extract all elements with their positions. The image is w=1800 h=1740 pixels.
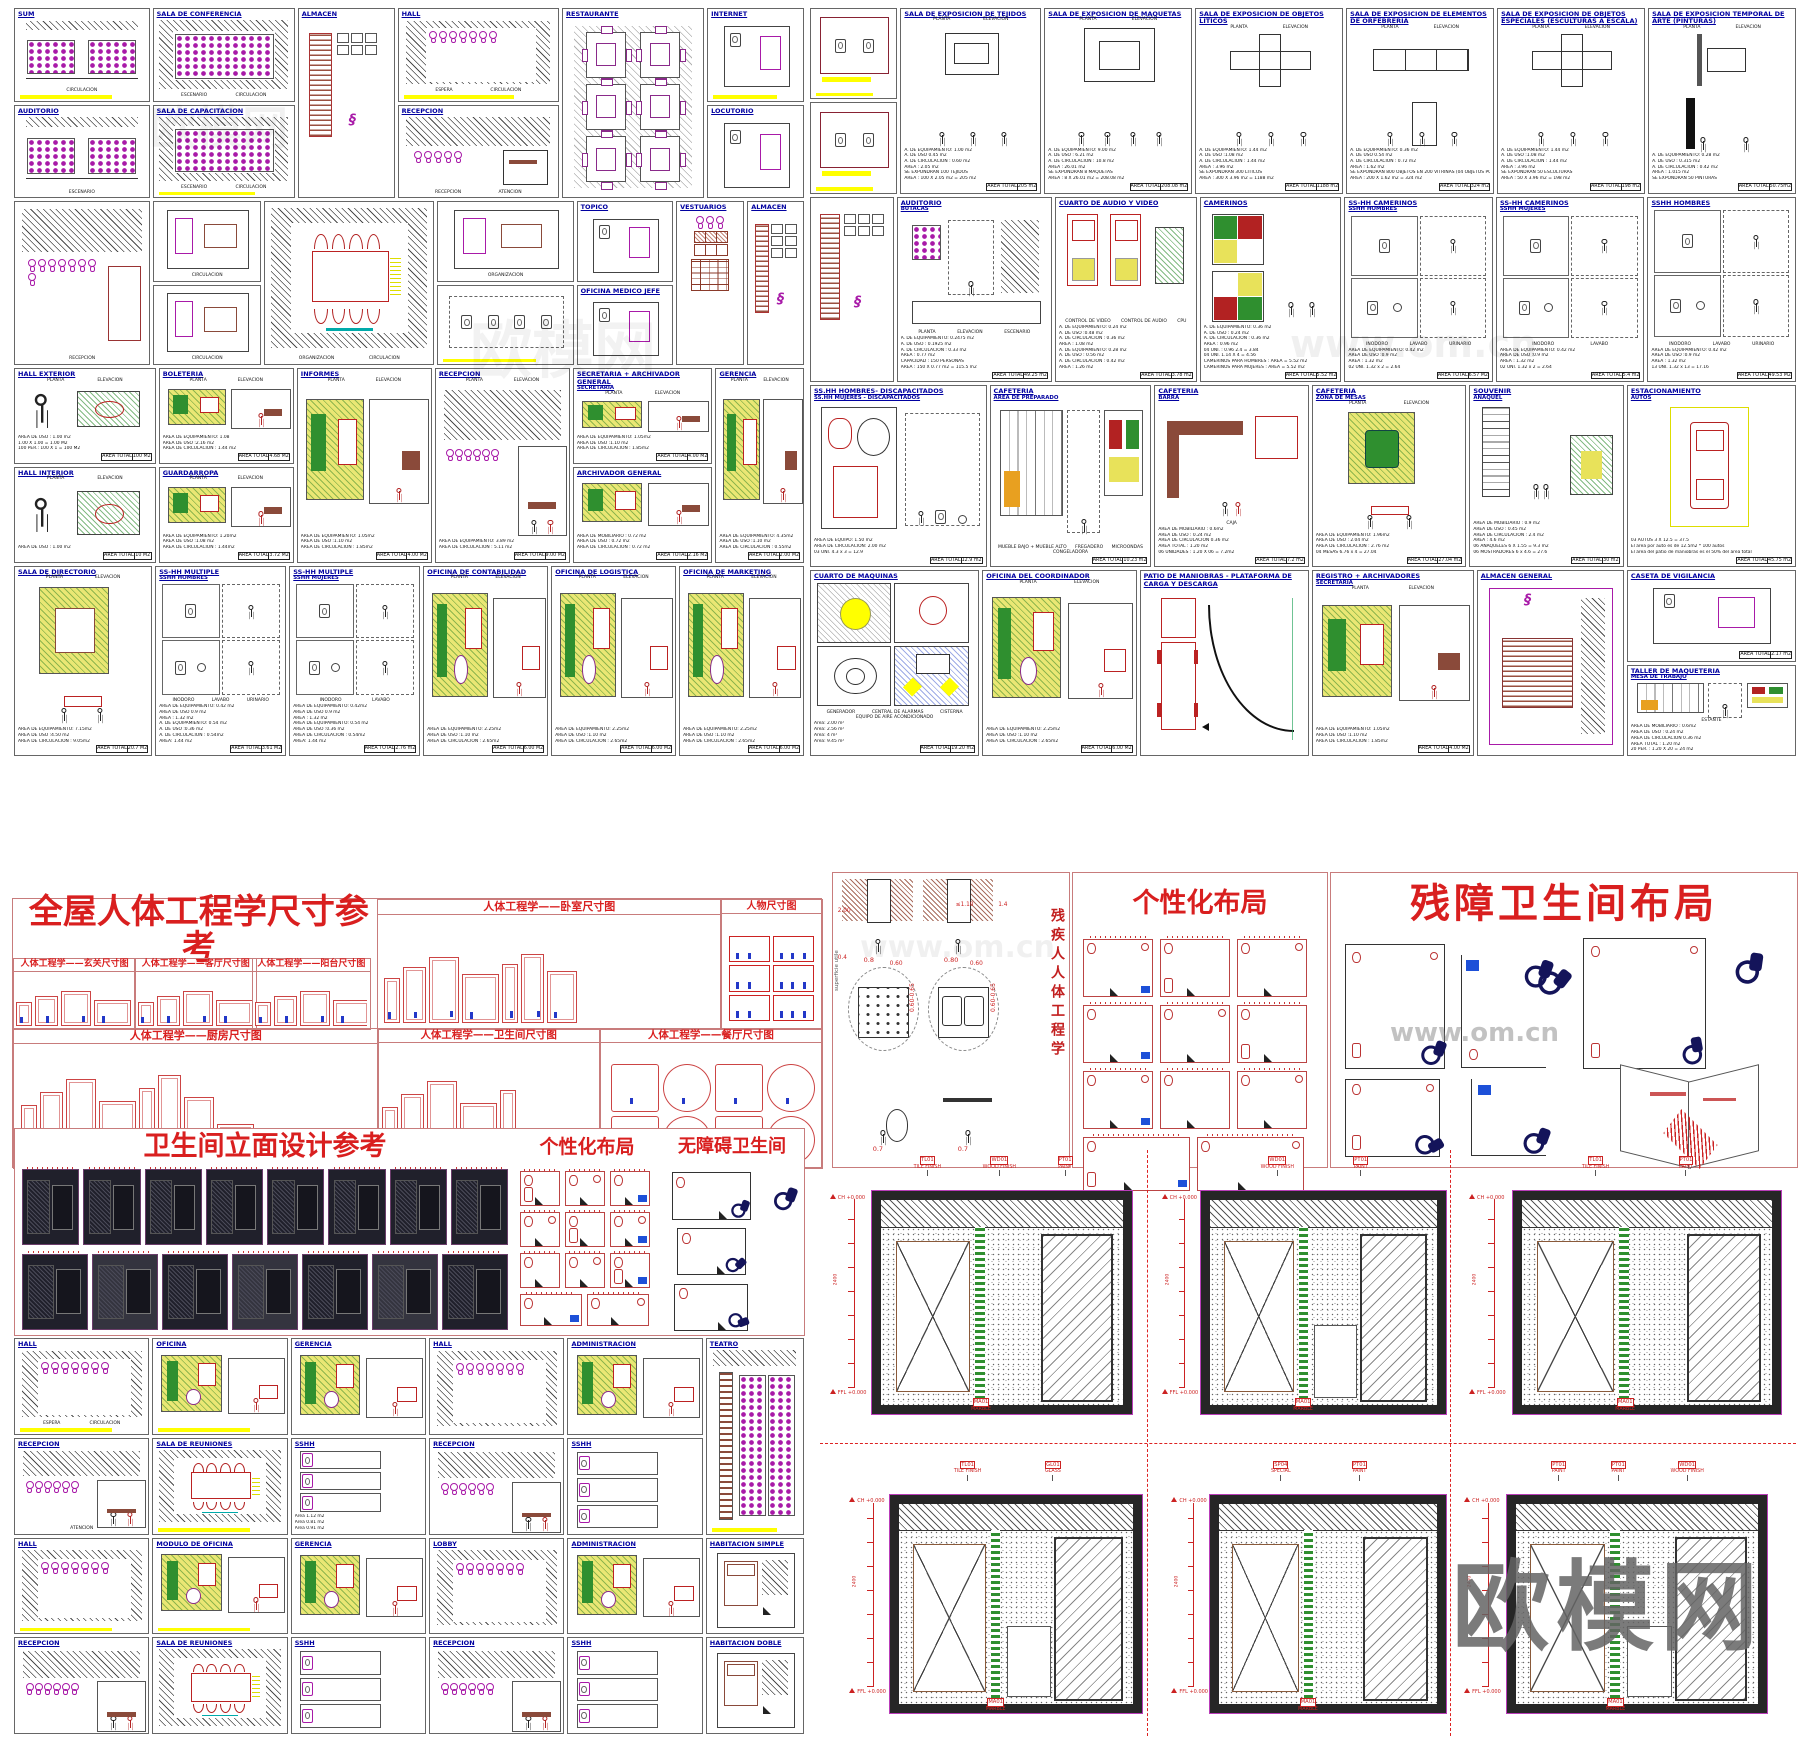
yellow-note <box>816 93 873 97</box>
panel-note: AREA DE CIRCULACION : 1.85m2 <box>301 545 428 551</box>
panel-drawing <box>18 1448 145 1526</box>
panel-drawing <box>814 402 983 539</box>
callout-label: MARBLE <box>971 1407 991 1412</box>
cad-panel-sshh: SSHHArea 1.12 m2Area 0.81 m2Area 0.91 m2 <box>291 1438 426 1535</box>
section-personalized-layout-2: 个性化布局 <box>514 1128 661 1336</box>
panel-title: HALL EXTERIOR <box>18 371 152 378</box>
panel-title: RECEPCION <box>433 1640 560 1647</box>
panel-notes: AREA DE EQUIPAMIENTO: 1.96m2AREA DE USO … <box>1316 533 1462 556</box>
panel-title: LOBBY <box>433 1541 560 1548</box>
panel-title: GERENCIA <box>295 1541 422 1548</box>
panel-drawing <box>577 477 709 533</box>
area-total-label: AREA TOTAL <box>97 746 127 752</box>
disabled-ergonomics-side-label: 残疾人人体工程学 <box>1047 908 1067 1131</box>
panel-labels: CIRCULACION <box>157 274 257 279</box>
callout-code: MA <box>988 1699 996 1706</box>
callout-code: MA <box>1296 1399 1304 1406</box>
panel-title: OFICINA <box>156 1341 283 1348</box>
section-spanish-cad-top-left: SUMCIRCULACIONAUDITORIOESCENARIOSALA DE … <box>14 8 804 756</box>
finish-callout: PT01 <box>1058 1156 1073 1165</box>
panel-drawing <box>711 18 800 93</box>
panel-drawing <box>1652 31 1792 153</box>
area-total-value: 4.68 M2 <box>268 454 288 460</box>
cad-panel-cafeteria: CAFETERIAAREA DE PREPARADOMUEBLE BAJO + … <box>990 385 1152 567</box>
panel-notes: AREA DE EQUIPAMIENTO: 1.08AREA DE USO :2… <box>163 435 290 452</box>
callout-number: 04 <box>1281 1462 1288 1469</box>
cad-panel-hall: HALL <box>14 1538 149 1635</box>
panel-note: AREA : 50 X 3.96 m2 = 198 m2 <box>1501 176 1641 182</box>
panel-drawing: § <box>814 200 890 380</box>
construction-elevation: 2400PT01PAINTPT01PAINTWD01WOOD FINISHMA0… <box>1464 1461 1767 1725</box>
panel-title: SALA DE CONFERENCIA <box>157 11 291 18</box>
panel-note: AREA DE CIRCULACION : 0.72 m2 <box>577 545 709 551</box>
area-total-box: AREA TOTAL2.16 M2 <box>656 552 708 560</box>
area-total-value: 10 M2 <box>134 553 151 559</box>
ergonomic-sketch <box>216 1000 253 1026</box>
yellow-note <box>443 359 535 363</box>
panel-drawing <box>295 1448 422 1514</box>
panel-drawing <box>156 1648 283 1731</box>
panel-drawing <box>1316 407 1462 533</box>
area-total-label: AREA TOTAL <box>231 746 261 752</box>
panel-notes: AREA DE EQUIPAMIENTO: 0.42m2AREA DE USO … <box>293 704 416 744</box>
cad-panel-camerinos: CAMERINOSA. DE EQUIPAMIENTO: 0.36 m2A. D… <box>1200 197 1342 383</box>
person-size-section: 人物尺寸图 <box>720 899 823 1030</box>
cad-panel-sum: SUMCIRCULACION <box>14 8 150 102</box>
panel-title: OFICINA MEDICO JEFE <box>581 288 670 295</box>
area-total-box: AREA TOTAL3.61 M2 <box>230 745 282 753</box>
panel-title: RECEPCION <box>402 108 555 115</box>
area-total-label: AREA TOTAL <box>1440 184 1470 190</box>
panel-title: OFICINA DE MARKETING <box>683 569 800 576</box>
panel-title: SSHH HOMBRES <box>1651 200 1792 207</box>
cad-panel-vestuarios: VESTUARIOS <box>676 201 744 365</box>
panel-drawing <box>159 582 282 699</box>
area-total-value: 50.75m2 <box>1769 184 1791 190</box>
dimension-chain <box>1482 1503 1489 1688</box>
panel-note: AREA DE CIRCULACION : 1.44m2 <box>163 545 290 551</box>
area-total-label: AREA TOTAL <box>1572 558 1602 564</box>
dimension-value: 2400 <box>1165 1274 1170 1286</box>
panel-notes: A. DE EQUIPAMIENTO: 0.24 m2A. DE USO :0.… <box>1059 325 1193 371</box>
panel-drawing <box>814 105 893 185</box>
area-total-value: 2.76 m2 <box>394 746 415 752</box>
cad-panel-panel: § <box>810 197 894 383</box>
ergonomic-sketch <box>333 1000 367 1026</box>
panel-drawing <box>566 18 700 195</box>
dimension: 0.4 <box>838 955 847 961</box>
construction-elevation: 2400TL01TILE FINISHWD01WOOD FINISHPT01PA… <box>830 1156 1133 1426</box>
panel-drawing <box>156 1548 283 1626</box>
callout-code: MA <box>1608 1699 1616 1706</box>
cad-panel-restaurante: RESTAURANTE <box>562 8 704 198</box>
area-total-box: AREA TOTAL4.00 M2 <box>376 552 428 560</box>
panel-title: SALA DE EXPOSICION DE TEJIDOS <box>904 11 1037 18</box>
panel-label: ESPERA <box>43 1422 60 1427</box>
area-total-value: 3.61 M2 <box>261 746 281 752</box>
level-marker: FFL +0.000 <box>1464 1688 1501 1695</box>
bathroom-mini-plan <box>565 1253 605 1288</box>
dimension: 2.00 <box>838 908 851 914</box>
cad-panel-internet: INTERNET <box>707 8 804 102</box>
cad-panel-patio-de-maniobras-plataforma-de-carga-y-descarga: PATIO DE MANIOBRAS - PLATAFORMA DE CARGA… <box>1140 570 1309 756</box>
cad-panel-souvenir: SOUVENIRANAQUELAREA DE MOBILIARIO : 0.9 … <box>1469 385 1623 567</box>
panel-notes: AREA DE EQUIPAMIENTO: 2.25m2AREA DE USO … <box>683 727 800 744</box>
panel-label: CISTERNA <box>940 711 963 716</box>
panel-title: RECEPCION <box>439 371 566 378</box>
panel-notes: AREA DE EQUIPAMIENTO: 1.05m2AREA DE USO … <box>301 534 428 551</box>
section-barrier-free-bathroom: 无障碍卫生间 <box>660 1128 805 1336</box>
panel-note: AREA DE CIRCULACION : 1.85m2 <box>1316 739 1470 745</box>
finish-callout: MA01 <box>987 1698 1004 1707</box>
panel-label: ESPERA <box>435 89 452 94</box>
cad-panel-caseta-de-vigilancia: CASETA DE VIGILANCIAAREA TOTAL2.17 m2 <box>1627 570 1796 661</box>
cad-panel-sala-de-exposicion-de-maquetas: SALA DE EXPOSICION DE MAQUETASPLANTAELEV… <box>1044 8 1192 194</box>
panel-drawing <box>571 1648 698 1731</box>
cad-panel-secretaria-archivador-general: SECRETARIA + ARCHIVADOR GENERALSECRETARI… <box>573 368 713 464</box>
area-total-label: AREA TOTAL <box>377 553 407 559</box>
area-total-value: 198 m2 <box>1621 184 1640 190</box>
panel-labels: ORGANIZACIONCIRCULACION <box>268 357 430 362</box>
area-total-box: AREA TOTAL50.75m2 <box>1738 183 1792 191</box>
panel-note: SE EXPONDRAN 50 PINTURAS <box>1652 176 1792 182</box>
panel-notes: Area 1.12 m2Area 0.81 m2Area 0.91 m2 <box>295 1514 422 1531</box>
callout-number: 01 <box>1361 1157 1368 1164</box>
bathroom-mini-plan <box>565 1171 605 1206</box>
ergonomic-sketch <box>384 978 400 1024</box>
level-marker: CH +0.000 <box>1464 1497 1499 1504</box>
panel-title: HABITACION DOBLE <box>710 1640 800 1647</box>
panel-notes: AREA DE EQUIPAMIENTO: 3.89 m2AREA DE CIR… <box>439 539 566 550</box>
cad-panel-administracion: ADMINISTRACION <box>567 1338 702 1435</box>
area-total-value: 100 M2 <box>132 454 151 460</box>
area-total-label: AREA TOTAL <box>1739 184 1769 190</box>
bathroom-mini-plan <box>1237 1071 1307 1129</box>
bathroom-mini-plan <box>610 1212 650 1247</box>
cad-panel-sala-de-directorio: SALA DE DIRECTORIOPLANTAELEVACIONAREA DE… <box>14 566 152 756</box>
dimension-value: 2400 <box>1175 1576 1180 1588</box>
panel-notes: AREA DE MOBILIARIO : 0.9 m2AREA DE USO :… <box>1473 521 1619 555</box>
panel-drawing <box>1048 23 1188 147</box>
bathroom-mini-plan <box>565 1212 605 1247</box>
cad-panel-oficina-de-marketing: OFICINA DE MARKETINGPLANTAELEVACIONAREA … <box>679 566 804 756</box>
cad-panel-modulo-de-oficina: MODULO DE OFICINA <box>152 1538 287 1635</box>
area-total-value: 5.4 m2 <box>1622 373 1640 379</box>
panel-drawing <box>156 1448 283 1526</box>
panel-label: ESCENARIO <box>181 186 207 191</box>
panel-drawing <box>904 23 1037 147</box>
bathroom-mini-plan <box>1237 939 1307 997</box>
area-total-value: 6.00 M2 <box>523 746 543 752</box>
panel-drawing <box>571 1448 698 1531</box>
panel-notes: AREA DE EQUIPAMIENTO: 0.42 m2AREA DE USO… <box>1348 348 1489 371</box>
panel-drawing <box>18 1648 145 1731</box>
panel-drawing <box>1631 681 1792 719</box>
area-total-value: 49.25 m2 <box>1023 373 1047 379</box>
area-total-label: AREA TOTAL <box>365 746 395 752</box>
area-total-value: 9.00 M2 <box>545 553 565 559</box>
panel-title: CASETA DE VIGILANCIA <box>1631 573 1792 580</box>
panel-title: BOLETERIA <box>163 371 290 378</box>
panel-labels: ESCENARIO <box>18 191 146 196</box>
callout-label: MARBLE <box>1606 1707 1626 1712</box>
area-total-box: AREA TOTAL198 m2 <box>1590 183 1641 191</box>
panel-drawing <box>433 1548 560 1631</box>
area-total-box: AREA TOTAL2.00 M2 <box>748 552 800 560</box>
cad-panel-ss-hh-camerinos: SS-HH CAMERINOSSSHH HOMBRESINODOROLAVABO… <box>1344 197 1493 383</box>
panel-labels: CIRCULACION <box>18 89 146 94</box>
area-total-box: AREA TOTAL4.00 M2 <box>656 453 708 461</box>
finish-callout: WD01 <box>990 1156 1008 1165</box>
panel-title: ARCHIVADOR GENERAL <box>577 470 709 477</box>
panel-drawing <box>1144 588 1305 753</box>
dimension: ≤1.10 <box>956 902 974 908</box>
area-total-value: 2.17 m2 <box>1770 652 1791 658</box>
area-total-box: AREA TOTAL4.00 M2 <box>1418 745 1470 753</box>
panel-notes: AREA DE USO : 1.00 m2 <box>18 545 152 551</box>
dimension: 0.60-0.65 <box>909 983 916 1012</box>
area-total-label: AREA TOTAL <box>987 184 1017 190</box>
cad-panel-hall-interior: HALL INTERIORPLANTAELEVACIONAREA DE USO … <box>14 467 156 563</box>
ergonomic-sketch <box>16 1002 32 1026</box>
panel-drawing <box>433 1348 560 1431</box>
area-total-value: 3.72 M2 <box>268 553 288 559</box>
area-total-box: AREA TOTAL3.78 m2 <box>1140 372 1193 380</box>
panel-label: ORGANIZACION <box>299 357 334 362</box>
disabled-bathroom-title: 残障卫生间布局 <box>1350 879 1779 929</box>
panel-drawing <box>433 1448 560 1531</box>
cad-panel-auditorio: AUDITORIOESCENARIO <box>14 105 150 199</box>
ergonomic-sketch <box>138 1002 154 1026</box>
level-marker: FFL +0.000 <box>1171 1688 1208 1695</box>
panel-notes: A. DE EQUIPAMIENTO: 1.00 m2A. DE USO 0.4… <box>904 148 1037 182</box>
dining-title: 人体工程学——餐厅尺寸图 <box>600 1029 822 1044</box>
area-total-label: AREA TOTAL <box>749 746 779 752</box>
panel-drawing <box>711 115 800 195</box>
panel-drawing <box>710 1548 800 1631</box>
callout-number: 01 <box>1559 1462 1566 1469</box>
panel-labels: ESPERACIRCULACION <box>402 89 555 94</box>
cad-panel-hall: HALL <box>429 1338 564 1435</box>
area-total-value: 6.00 M2 <box>779 746 799 752</box>
panel-drawing <box>581 295 670 362</box>
panel-drawing <box>295 1648 422 1731</box>
cad-panel-almacen: ALMACEN§ <box>747 201 804 365</box>
area-total-label: AREA TOTAL <box>931 558 961 564</box>
dimension-value: 2400 <box>833 1274 838 1286</box>
panel-title: VESTUARIOS <box>680 204 740 211</box>
cad-panel-topico: TOPICO <box>577 201 674 281</box>
panel-notes: AREA DE EQUIPAMIENTO: 2.25m2AREA DE USO … <box>427 727 544 744</box>
panel-label: CIRCULACION <box>66 89 97 94</box>
ergonomic-sketch <box>403 967 426 1023</box>
section-personalized-layout: 个性化布局 <box>1072 872 1328 1168</box>
callout-number: 01 <box>1618 1462 1625 1469</box>
cad-panel-recepcion: RECEPCION <box>429 1637 564 1734</box>
cad-panel-oficina: OFICINA <box>152 1338 287 1435</box>
balcony-size-section: 人体工程学——阳台尺寸图 <box>252 958 370 1030</box>
area-total-label: AREA TOTAL <box>1082 746 1112 752</box>
cad-panel-gerencia: GERENCIA <box>291 1538 426 1635</box>
personalized-layout-title: 个性化布局 <box>1083 879 1317 929</box>
panel-label: RECEPCION <box>69 357 95 362</box>
callout-code: WD <box>1679 1462 1688 1469</box>
panel-drawing <box>581 212 670 279</box>
area-total-value: 4.00 M2 <box>406 553 426 559</box>
panel-note: 04 MESAS 6.76 x 4 = 27.04 <box>1316 550 1462 556</box>
panel-drawing <box>1199 31 1339 148</box>
dimension-chain <box>867 1503 874 1688</box>
ergonomic-sketch <box>61 991 91 1026</box>
area-total-value: 2.00 M2 <box>779 553 799 559</box>
panel-drawing <box>1500 213 1641 343</box>
panel-notes: AREA DE EQUIPAMIENTO: 2.25m2AREA DE USO … <box>986 727 1132 744</box>
bath-elevation-thumb <box>328 1169 385 1245</box>
area-total-value: 19.20 m2 <box>950 746 974 752</box>
callout-number: 01 <box>1595 1157 1602 1164</box>
cad-panel-gerencia: GERENCIAPLANTAELEVACIONAREA DE EQUIPAMIE… <box>715 368 804 562</box>
area-total-box: AREA TOTAL2.76 m2 <box>364 745 417 753</box>
section-spanish-cad-top-right: SALA DE EXPOSICION DE TEJIDOSPLANTAELEVA… <box>810 8 1796 756</box>
section-bathroom-construction-elevations: 2400TL01TILE FINISHWD01WOOD FINISHPT01PA… <box>820 1150 1796 1736</box>
level-marker: CH +0.000 <box>830 1194 865 1201</box>
area-total-label: AREA TOTAL <box>1286 184 1316 190</box>
callout-number: 01 <box>1616 1699 1623 1706</box>
panel-drawing <box>268 204 430 357</box>
dimension: 0.60 <box>890 961 903 967</box>
callout-number: 01 <box>1279 1157 1286 1164</box>
bedroom-title: 人体工程学——卧室尺寸图 <box>378 900 721 915</box>
panel-title: ALMACEN GENERAL <box>1481 573 1620 580</box>
panel-labels: ESCENARIOCIRCULACION <box>157 94 291 99</box>
callout-code: MA <box>974 1399 982 1406</box>
panel-title: HALL <box>433 1341 560 1348</box>
panel-drawing <box>571 1348 698 1431</box>
section-disabled-bathroom-layout: 残障卫生间布局 <box>1330 872 1798 1168</box>
living-size-section: 人体工程学——客厅尺寸图 <box>134 958 257 1030</box>
panel-title: OFICINA DE CONTABILIDAD <box>427 569 544 576</box>
bathroom-mini-plan <box>520 1294 582 1326</box>
bathroom-mini-plan <box>520 1171 560 1206</box>
callout-number: 01 <box>982 1399 989 1406</box>
yellow-note <box>712 1528 777 1532</box>
cad-panel-habitacion-doble: HABITACION DOBLE <box>706 1637 804 1734</box>
panel-drawing <box>710 1348 800 1526</box>
panel-title: ADMINISTRACION <box>571 1541 698 1548</box>
panel-title: SSHH <box>295 1640 422 1647</box>
panel-drawing <box>571 1548 698 1631</box>
panel-drawing: § <box>751 212 800 362</box>
cad-panel-archivador-general: ARCHIVADOR GENERALAREA DE MOBILIARIO : 0… <box>573 467 713 563</box>
panel-title: CAFETERIA <box>1158 388 1304 395</box>
callout-label: MARBLE <box>1293 1407 1313 1412</box>
bath-elevation-thumb <box>451 1169 508 1245</box>
area-total-value: 205 m2 <box>1017 184 1036 190</box>
entry-title: 人体工程学——玄关尺寸图 <box>14 959 135 972</box>
panel-label: CIRCULACION <box>236 94 267 99</box>
panel-title: HALL <box>402 11 555 18</box>
level-marker: FFL +0.000 <box>830 1389 867 1396</box>
panel-drawing <box>157 204 257 273</box>
panel-drawing <box>901 213 1048 331</box>
area-total-label: AREA TOTAL <box>657 454 687 460</box>
construction-elevation: 2400WD01WOOD FINISHPT01PAINTMA01MARBLECH… <box>1162 1156 1445 1426</box>
panel-labels: RECEPCIONATENCION <box>402 191 555 196</box>
area-total-box: AREA TOTAL19.20 m2 <box>920 745 976 753</box>
area-total-box: AREA TOTAL12.9 m2 <box>930 557 983 565</box>
panel-notes: A. DE EQUIPAMIENTO: 9.00 m2A. DE USO : 6… <box>1048 148 1188 182</box>
ergonomic-sketch <box>300 991 330 1026</box>
panel-title: SSHH <box>295 1441 422 1448</box>
area-total-value: 20.7 M2 <box>127 746 147 752</box>
panel-note: 13 UNI. 1.32 x 13 = 17.16 <box>1651 365 1792 371</box>
area-total-box: AREA TOTAL9.00 M2 <box>514 552 566 560</box>
panel-label: ESCENARIO <box>181 94 207 99</box>
bath-elevation-thumb <box>22 1254 88 1330</box>
area-total-label: AREA TOTAL <box>1256 558 1286 564</box>
dimension: 1.4 <box>998 902 1007 908</box>
panel-drawing <box>157 288 257 357</box>
cad-panel-locutorio: LOCUTORIO <box>707 105 804 199</box>
panel-labels: ESCENARIOCIRCULACION <box>157 186 291 191</box>
cad-panel-oficina-de-contabilidad: OFICINA DE CONTABILIDADPLANTAELEVACIONAR… <box>423 566 548 756</box>
area-total-box: AREA TOTAL2.17 m2 <box>1739 651 1792 659</box>
personalized-layout-2-title: 个性化布局 <box>518 1131 655 1164</box>
panel-drawing <box>18 1548 145 1626</box>
section-bath-elevation-reference: 卫生间立面设计参考 <box>14 1128 516 1336</box>
panel-label: GENERADOR <box>827 711 856 716</box>
yellow-note <box>20 95 112 99</box>
panel-note: 100 PER.: 100 X 1 = 100 M2 <box>18 446 152 452</box>
panel-drawing <box>439 384 566 540</box>
cad-panel-panel: CIRCULACION <box>153 285 261 365</box>
panel-title: HALL <box>18 1541 145 1548</box>
area-total-value: 3.78 m2 <box>1171 373 1192 379</box>
panel-title: INTERNET <box>711 11 800 18</box>
area-total-value: 49.53 M2 <box>1768 373 1791 379</box>
bathroom-mini-plan <box>1237 1005 1307 1063</box>
panel-label: ESCENARIO <box>69 191 95 196</box>
finish-callout: MA01 <box>1300 1698 1317 1707</box>
barrier-free-plan <box>674 1284 748 1331</box>
cad-panel-sshh: SSHH <box>567 1438 702 1535</box>
panel-drawing <box>163 482 290 533</box>
panel-label: CIRCULACION <box>369 357 400 362</box>
panel-title: SALA DE EXPOSICION DE ELEMENTOS DE ORFEB… <box>1350 11 1490 26</box>
area-total-value: 4.00 M2 <box>687 454 707 460</box>
panel-drawing <box>402 115 555 190</box>
accessible-bathroom-plan <box>1345 1079 1440 1157</box>
area-total-label: AREA TOTAL <box>1408 558 1438 564</box>
finish-callout: WD01 <box>1268 1156 1286 1165</box>
level-marker: CH +0.000 <box>1469 1194 1504 1201</box>
area-total-box: AREA TOTAL100 M2 <box>101 453 152 461</box>
panel-note: AREA : 150 X 0.77 m2 = 115.5 m2 <box>901 365 1048 371</box>
panel-title: SUM <box>18 11 146 18</box>
area-total-value: 6.00 M2 <box>1111 746 1131 752</box>
panel-note: El area del patio de maniobras es el 50%… <box>1631 550 1792 556</box>
panel-labels: RECEPCION <box>18 357 146 362</box>
panel-note: AREA DE CIRCULACION : 1.85m2 <box>577 446 709 452</box>
callout-number: 01 <box>1309 1699 1316 1706</box>
panel-drawing <box>163 384 290 435</box>
dimension-value: 2400 <box>853 1576 858 1588</box>
ergonomic-sketch <box>183 991 213 1026</box>
cad-panel-oficina-medico-jefe: OFICINA MEDICO JEFE <box>577 285 674 365</box>
area-total-value: 6.57 M2 <box>1468 373 1488 379</box>
bath-elevation-thumb <box>92 1254 158 1330</box>
panel-note: AREA : 300 X 3.96 m2 = 1188 m2 <box>1199 176 1339 182</box>
